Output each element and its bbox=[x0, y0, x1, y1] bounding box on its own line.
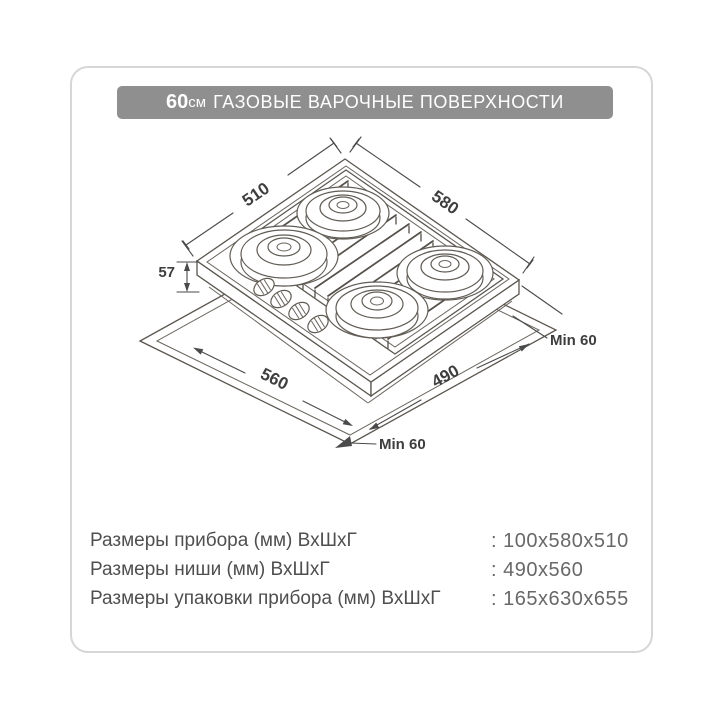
dimension-57: 57 bbox=[158, 262, 199, 292]
dim-560-label: 560 bbox=[257, 364, 291, 394]
dim-580-label: 580 bbox=[428, 187, 462, 219]
min60-bottom-label: Min 60 bbox=[379, 436, 426, 453]
hob-technical-drawing: 510 580 57 560 490 bbox=[0, 0, 720, 720]
min60-right-label: Min 60 bbox=[550, 332, 597, 349]
dim-510-label: 510 bbox=[239, 179, 273, 211]
burner-left bbox=[230, 226, 338, 286]
dim-57-label: 57 bbox=[158, 264, 175, 281]
product-spec-sheet: 60смГАЗОВЫЕ ВАРОЧНЫЕ ПОВЕРХНОСТИ Размеры… bbox=[0, 0, 720, 720]
annotation-min60-bottom: Min 60 bbox=[335, 436, 426, 453]
burner-front bbox=[326, 282, 428, 338]
dim-490-label: 490 bbox=[428, 361, 462, 391]
annotation-min60-right: Min 60 bbox=[513, 286, 597, 349]
